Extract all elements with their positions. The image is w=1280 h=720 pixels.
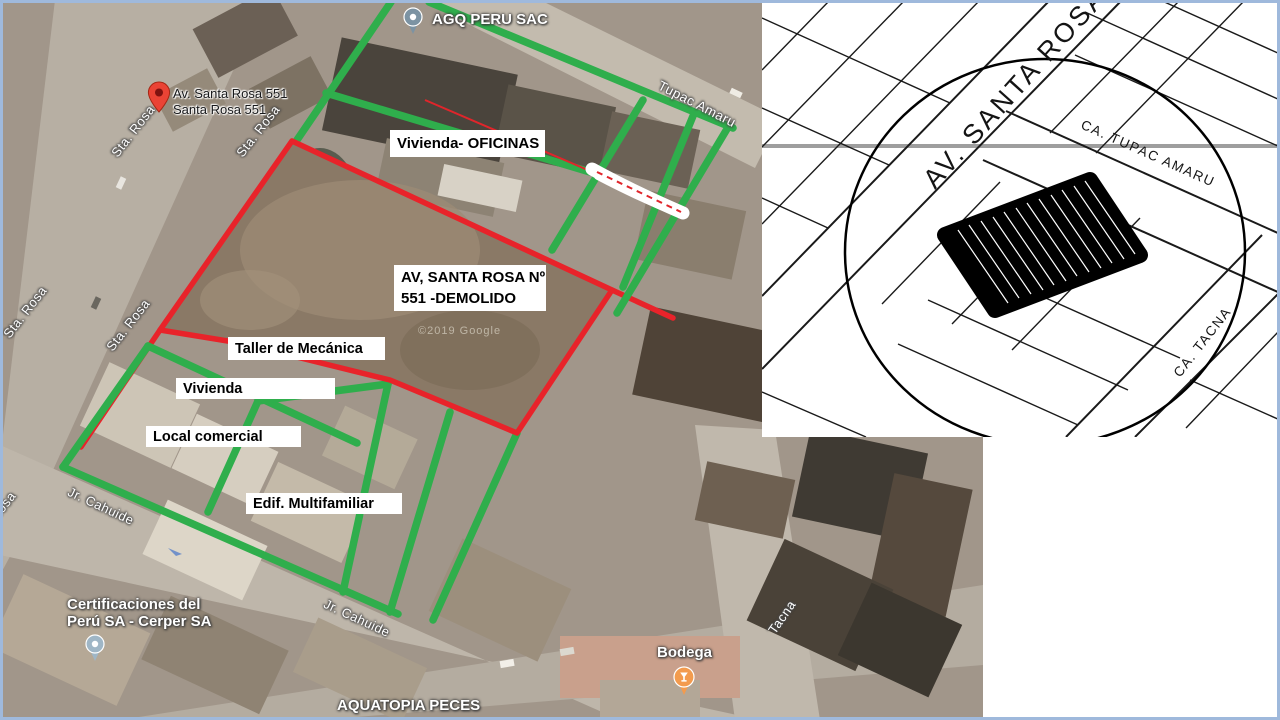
- inset-label-av-santa-rosa: AV. SANTA ROSA: [917, 0, 1113, 194]
- marker-address-line2: Santa Rosa 551: [173, 102, 287, 118]
- poi-label-aquatopia: AQUATOPIA PECES: [337, 697, 480, 714]
- slide-canvas: Sta. Rosa Sta. Rosa Sta. Rosa Sta. Rosa …: [0, 0, 1280, 720]
- poi-label-agq: AGQ PERU SAC: [432, 11, 548, 28]
- cerper-poi-pin-icon: [84, 634, 106, 662]
- label-box-vivienda-oficinas: Vivienda- OFICINAS: [390, 130, 545, 157]
- marker-address-label: Av. Santa Rosa 551 Santa Rosa 551: [173, 86, 287, 118]
- label-box-av-santa-rosa-demolido: AV, SANTA ROSA Nº 551 -DEMOLIDO: [394, 265, 546, 311]
- bodega-poi-pin-icon: [672, 666, 696, 696]
- cerper-line2: Perú SA - Cerper SA: [67, 613, 212, 630]
- inset-property-block: [945, 180, 1140, 310]
- marker-address-line1: Av. Santa Rosa 551: [173, 86, 287, 102]
- agq-poi-pin-icon: [402, 7, 424, 35]
- poi-label-cerper: Certificaciones del Perú SA - Cerper SA: [67, 596, 212, 630]
- label-box-taller-mecanica: Taller de Mecánica: [228, 337, 385, 360]
- label-box-edif-multifamiliar: Edif. Multifamiliar: [246, 493, 402, 514]
- inset-plan-map: AV. SANTA ROSA CA. TUPAC AMARU CA. TACNA: [762, 0, 1280, 437]
- inset-plan-drawing: AV. SANTA ROSA CA. TUPAC AMARU CA. TACNA: [762, 0, 1280, 437]
- red-location-pin-icon: [146, 81, 172, 113]
- poi-label-bodega: Bodega: [657, 644, 712, 661]
- lot-label-line1: AV, SANTA ROSA Nº: [401, 267, 545, 288]
- cerper-line1: Certificaciones del: [67, 596, 212, 613]
- label-box-vivienda: Vivienda: [176, 378, 335, 399]
- google-watermark: ©2019 Google: [418, 325, 501, 337]
- lot-label-line2: 551 -DEMOLIDO: [401, 288, 516, 309]
- label-box-local-comercial: Local comercial: [146, 426, 301, 447]
